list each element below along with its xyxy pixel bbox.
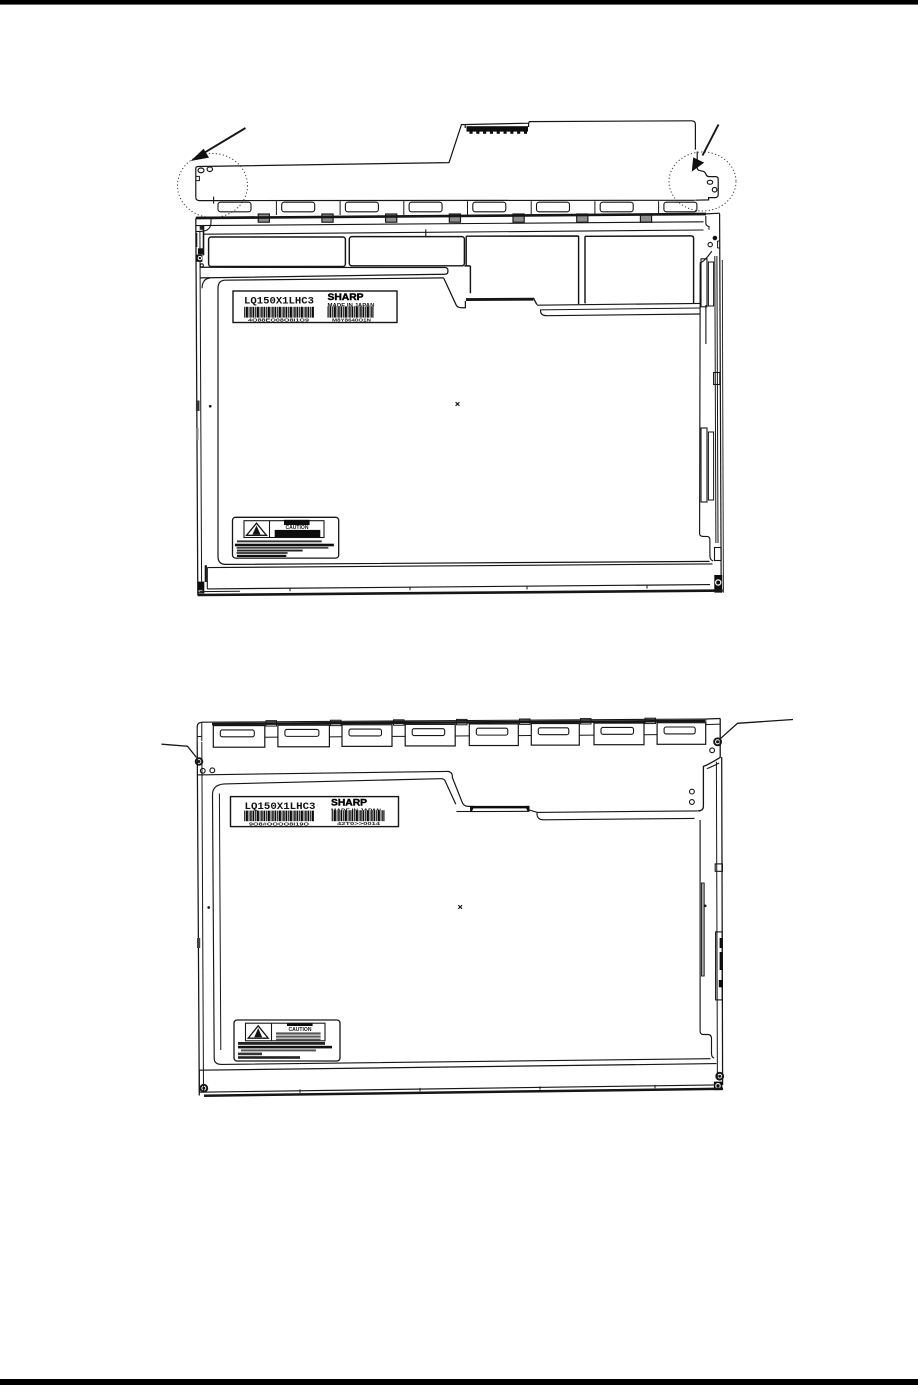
svg-text:LQ150X1LHC3: LQ150X1LHC3 bbox=[244, 296, 314, 308]
svg-text:9O8#OOOO8I19O: 9O8#OOOO8I19O bbox=[249, 821, 309, 827]
svg-text:CAUTION: CAUTION bbox=[286, 525, 309, 531]
svg-text:4O88EO08O8I1O9: 4O88EO08O8I1O9 bbox=[248, 318, 309, 324]
svg-text:SHARP: SHARP bbox=[328, 292, 364, 302]
svg-text:42T0>>0014: 42T0>>0014 bbox=[337, 821, 381, 827]
svg-text:SHARP: SHARP bbox=[331, 798, 367, 808]
svg-text:CAUTION: CAUTION bbox=[289, 1027, 312, 1033]
svg-text:M8Y8640O1N: M8Y8640O1N bbox=[332, 317, 372, 323]
